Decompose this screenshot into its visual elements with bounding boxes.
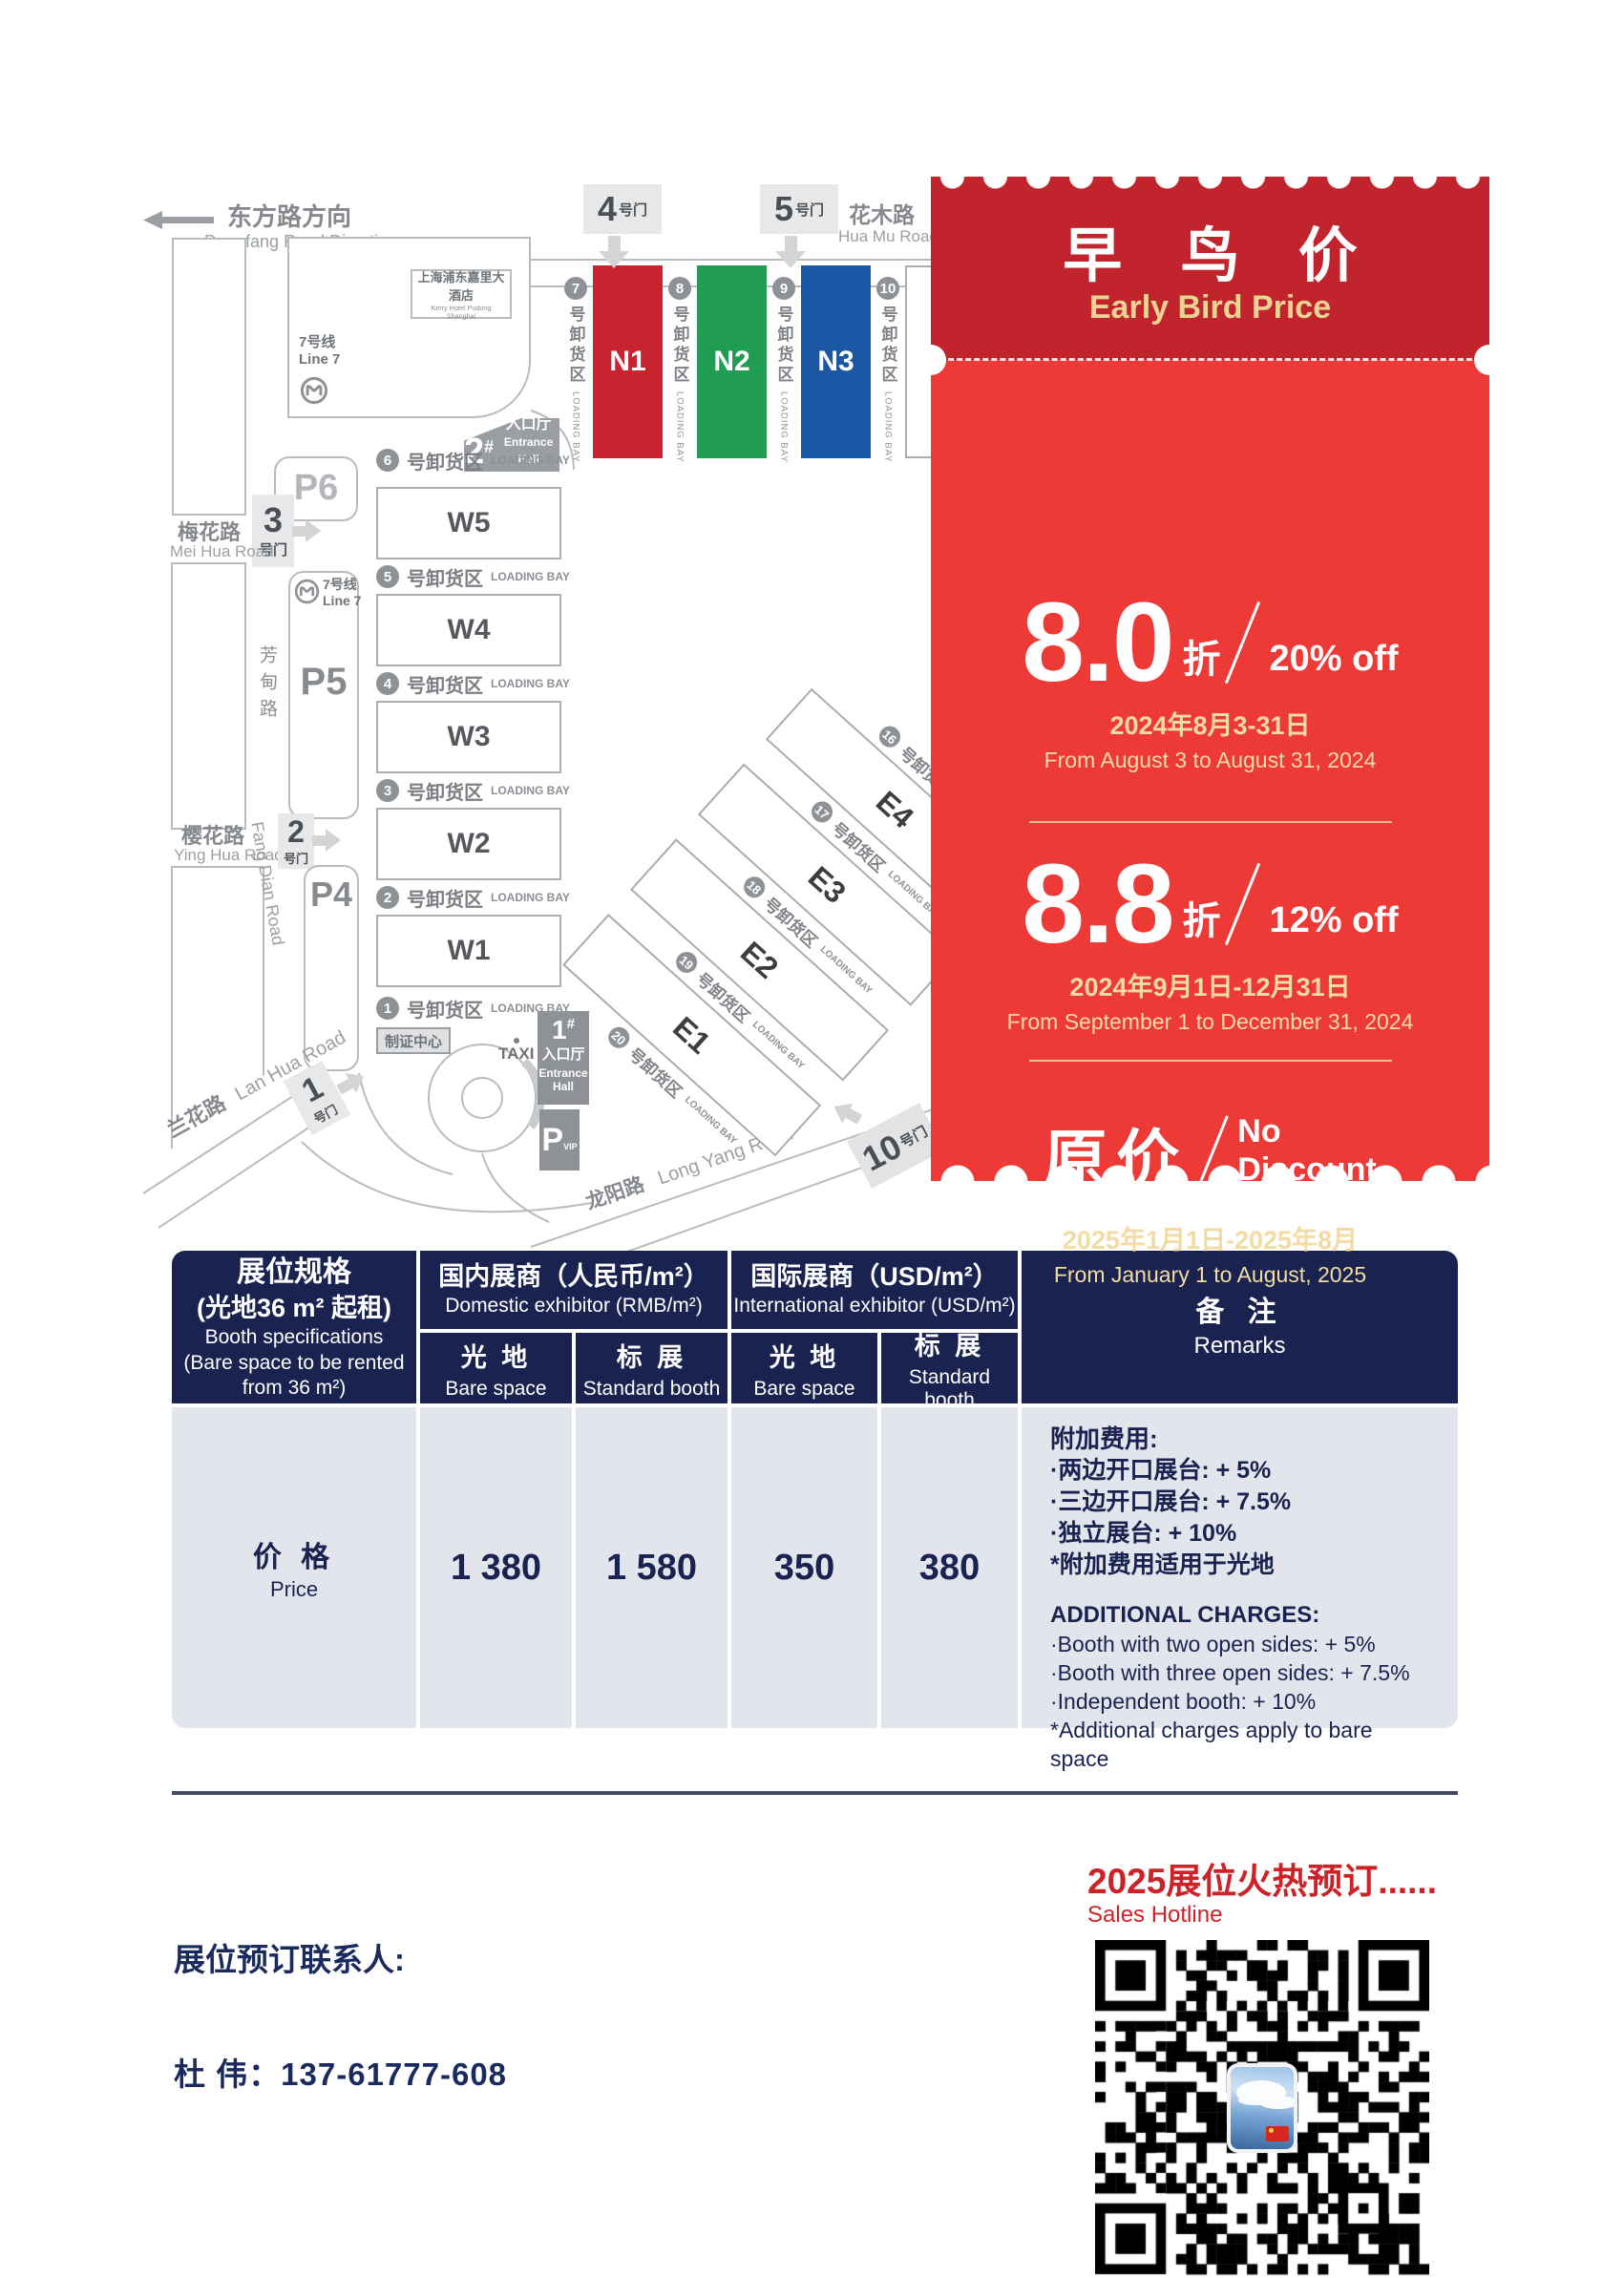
line7-label: 7号线Line 7 bbox=[323, 577, 361, 609]
qr-center-logo bbox=[1227, 2063, 1297, 2153]
sales-hotline-en: Sales Hotline bbox=[1087, 1902, 1222, 1929]
metro-icon bbox=[294, 579, 320, 604]
badge-center-box: 制证中心 bbox=[376, 1027, 451, 1054]
th-domestic: 国内展商（人民币/m²）Domestic exhibitor (RMB/m²) bbox=[420, 1251, 728, 1329]
cloud-icon bbox=[1236, 2080, 1286, 2105]
remark-line: *附加费用适用于光地 bbox=[1050, 1550, 1429, 1581]
tier-early-bird-2: 8.8折 12% off 2024年9月1日-12月31日 From Septe… bbox=[931, 858, 1489, 1035]
tier-no-discount: 原价 NoDiscount 2025年1月1日-2025年8月 From Jan… bbox=[931, 1112, 1489, 1288]
loading-bay-2: 2号卸货区LOADING BAY bbox=[376, 886, 570, 909]
loading-bay-label-en: LOADING BAY bbox=[779, 391, 790, 463]
kerry-hotel-label: 上海浦东嘉里大酒店Kerry Hotel Pudong Shanghai bbox=[411, 269, 512, 319]
loading-bay-label-zh: 号卸货区 bbox=[407, 447, 483, 475]
loading-bay-label-zh: 号卸货区 bbox=[564, 306, 588, 386]
loading-bay-4: 4号卸货区LOADING BAY bbox=[376, 672, 570, 695]
remark-line: ·Booth with two open sides: + 5% bbox=[1050, 1630, 1429, 1658]
contact-phone: 杜 伟：137-61777-608 bbox=[174, 2049, 507, 2095]
china-flag-icon bbox=[1266, 2126, 1289, 2141]
parking-p5-label: P5 bbox=[288, 661, 359, 704]
td-remarks: 附加费用: ·两边开口展台: + 5%·三边开口展台: + 7.5%·独立展台:… bbox=[1022, 1407, 1458, 1728]
loading-bay-number: 9 bbox=[772, 277, 795, 300]
loading-bay-label-zh: 号卸货区 bbox=[407, 995, 483, 1023]
hall-N3: N3 bbox=[801, 265, 871, 458]
road-huamu-en: Hua Mu Road bbox=[838, 227, 939, 246]
ticket-header: 早 鸟 价 Early Bird Price bbox=[931, 177, 1489, 360]
ticket-body: 8.0折 20% off 2024年8月3-31日 From August 3 … bbox=[931, 360, 1489, 1181]
loading-bay-8: 8号卸货区LOADING BAY bbox=[663, 265, 697, 463]
city-block bbox=[172, 238, 246, 516]
td-price-domestic-standard: 1 580 bbox=[576, 1407, 728, 1728]
hall-W5: W5 bbox=[376, 487, 561, 559]
loading-bay-label-en: LOADING BAY bbox=[491, 570, 570, 583]
loading-bay-9: 9号卸货区LOADING BAY bbox=[767, 265, 801, 463]
loading-bay-number: 6 bbox=[376, 449, 399, 472]
gate-4: 4号门 bbox=[583, 184, 662, 234]
remark-line: ·Independent booth: + 10% bbox=[1050, 1687, 1429, 1716]
loading-bay-number: 5 bbox=[376, 565, 399, 588]
ticket-scallop-top bbox=[931, 177, 1489, 190]
th-international-bare: 光 地Bare space bbox=[731, 1333, 877, 1403]
road-huamu-zh: 花木路 bbox=[849, 197, 915, 229]
slash-icon bbox=[1225, 601, 1260, 684]
th-international-standard: 标 展Standard booth bbox=[881, 1333, 1018, 1403]
contact-label: 展位预订联系人: bbox=[174, 1934, 405, 1980]
loading-bay-label-en: LOADING BAY bbox=[675, 391, 685, 463]
loading-bay-number: 17 bbox=[808, 797, 837, 827]
loading-bay-number: 4 bbox=[376, 672, 399, 695]
hall-W3: W3 bbox=[376, 701, 561, 773]
loading-bay-label-zh: 号卸货区 bbox=[407, 670, 483, 698]
loading-bay-7: 7号卸货区LOADING BAY bbox=[559, 265, 593, 463]
gate-5-arrow-icon bbox=[775, 236, 806, 268]
loading-bay-label-zh: 号卸货区 bbox=[668, 306, 692, 386]
loading-bay-number: 10 bbox=[876, 277, 899, 300]
loading-bay-label-en: LOADING BAY bbox=[491, 784, 570, 797]
loading-bay-number: 16 bbox=[875, 722, 904, 751]
ticket-perforation bbox=[931, 358, 1489, 361]
hall-N2: N2 bbox=[697, 265, 767, 458]
ticket-title-en: Early Bird Price bbox=[931, 289, 1489, 327]
taxi-label: TAXI bbox=[498, 1044, 534, 1064]
loading-bay-number: 8 bbox=[668, 277, 691, 300]
td-price-international-standard: 380 bbox=[881, 1407, 1018, 1728]
taxi-dot-icon bbox=[514, 1038, 519, 1044]
remark-line: *Additional charges apply to bare space bbox=[1050, 1716, 1429, 1773]
loading-bay-label-zh: 号卸货区 bbox=[407, 563, 483, 591]
dongfang-arrow-icon bbox=[143, 211, 214, 229]
loading-bay-label-en: LOADING BAY bbox=[883, 391, 894, 463]
loading-bay-10: 10号卸货区LOADING BAY bbox=[871, 265, 905, 463]
td-price-label: 价 格Price bbox=[172, 1407, 416, 1728]
td-price-domestic-bare: 1 380 bbox=[420, 1407, 572, 1728]
slash-icon bbox=[1225, 863, 1260, 945]
vip-parking: PVIP bbox=[539, 1109, 580, 1171]
parking-p4-label: P4 bbox=[304, 875, 359, 915]
road-dongfang-zh: 东方路方向 bbox=[227, 198, 351, 233]
gate-5: 5号门 bbox=[760, 184, 838, 234]
ticket-notch-right bbox=[1474, 345, 1505, 375]
gate-10-arrow-icon bbox=[829, 1096, 865, 1129]
road-yinghua-en: Ying Hua Road bbox=[174, 846, 284, 865]
hall-W1: W1 bbox=[376, 915, 561, 987]
road-fangdian-zh: 芳甸路 bbox=[254, 645, 280, 726]
flyer-page: 东方路方向 Dongfang Road Direction 4号门 5号门 花木… bbox=[0, 0, 1624, 2278]
ticket-divider bbox=[1029, 821, 1392, 823]
loading-bay-label-en: LOADING BAY bbox=[491, 677, 570, 690]
loading-bay-label-en: LOADING BAY bbox=[491, 891, 570, 904]
gate-2-arrow-icon bbox=[312, 829, 341, 852]
loading-bay-label-zh: 号卸货区 bbox=[772, 306, 796, 386]
loading-bay-6: 6号卸货区LOADING BAY bbox=[376, 449, 570, 472]
footer-divider bbox=[172, 1791, 1458, 1795]
wechat-qr bbox=[1095, 1940, 1429, 2276]
th-domestic-standard: 标 展Standard booth bbox=[576, 1333, 728, 1403]
early-bird-ticket: 早 鸟 价 Early Bird Price 8.0折 20% off 2024… bbox=[931, 177, 1489, 1181]
loading-bay-label-en: LOADING BAY bbox=[571, 391, 581, 463]
loading-bay-number: 3 bbox=[376, 779, 399, 802]
loading-bay-3: 3号卸货区LOADING BAY bbox=[376, 779, 570, 802]
ticket-divider bbox=[1029, 1060, 1392, 1062]
gate-2: 2号门 bbox=[278, 813, 314, 869]
loading-bay-number: 7 bbox=[564, 277, 587, 300]
loading-bay-number: 1 bbox=[376, 997, 399, 1020]
loading-bay-number: 20 bbox=[604, 1023, 634, 1052]
loading-bay-number: 19 bbox=[672, 947, 702, 977]
gate-4-arrow-icon bbox=[599, 236, 629, 268]
remark-line: ·独立展台: + 10% bbox=[1050, 1518, 1429, 1550]
ticket-notch-left bbox=[916, 345, 946, 375]
th-booth-spec: 展位规格 (光地36 m² 起租) Booth specifications (… bbox=[172, 1251, 416, 1403]
td-price-international-bare: 350 bbox=[731, 1407, 877, 1728]
city-block bbox=[171, 562, 246, 830]
road-meihua-en: Mei Hua Road bbox=[170, 542, 274, 561]
remark-line: ·两边开口展台: + 5% bbox=[1050, 1455, 1429, 1487]
loading-bay-number: 2 bbox=[376, 886, 399, 909]
line7-label: 7号线Line 7 bbox=[299, 334, 340, 369]
th-domestic-bare: 光 地Bare space bbox=[420, 1333, 572, 1403]
ticket-scallop-bottom bbox=[931, 1162, 1489, 1181]
hall-W2: W2 bbox=[376, 808, 561, 880]
ticket-title-zh: 早 鸟 价 bbox=[931, 207, 1489, 293]
sales-hotline-zh: 2025展位火热预订...... bbox=[1087, 1852, 1437, 1904]
loading-bay-label-zh: 号卸货区 bbox=[407, 777, 483, 805]
hall-N1: N1 bbox=[593, 265, 663, 458]
hall-W4: W4 bbox=[376, 594, 561, 666]
tier-early-bird-1: 8.0折 20% off 2024年8月3-31日 From August 3 … bbox=[931, 597, 1489, 773]
north-halls: 7号卸货区LOADING BAYN18号卸货区LOADING BAYN29号卸货… bbox=[559, 265, 975, 463]
remark-line: ·三边开口展台: + 7.5% bbox=[1050, 1487, 1429, 1518]
loading-bay-label-zh: 号卸货区 bbox=[876, 306, 900, 386]
gate-3-arrow-icon bbox=[292, 519, 321, 542]
remark-line: ·Booth with three open sides: + 7.5% bbox=[1050, 1658, 1429, 1687]
loading-bay-5: 5号卸货区LOADING BAY bbox=[376, 565, 570, 588]
loading-bay-number: 18 bbox=[740, 873, 770, 902]
metro-icon bbox=[300, 376, 328, 405]
loading-bay-label-zh: 号卸货区 bbox=[407, 884, 483, 912]
